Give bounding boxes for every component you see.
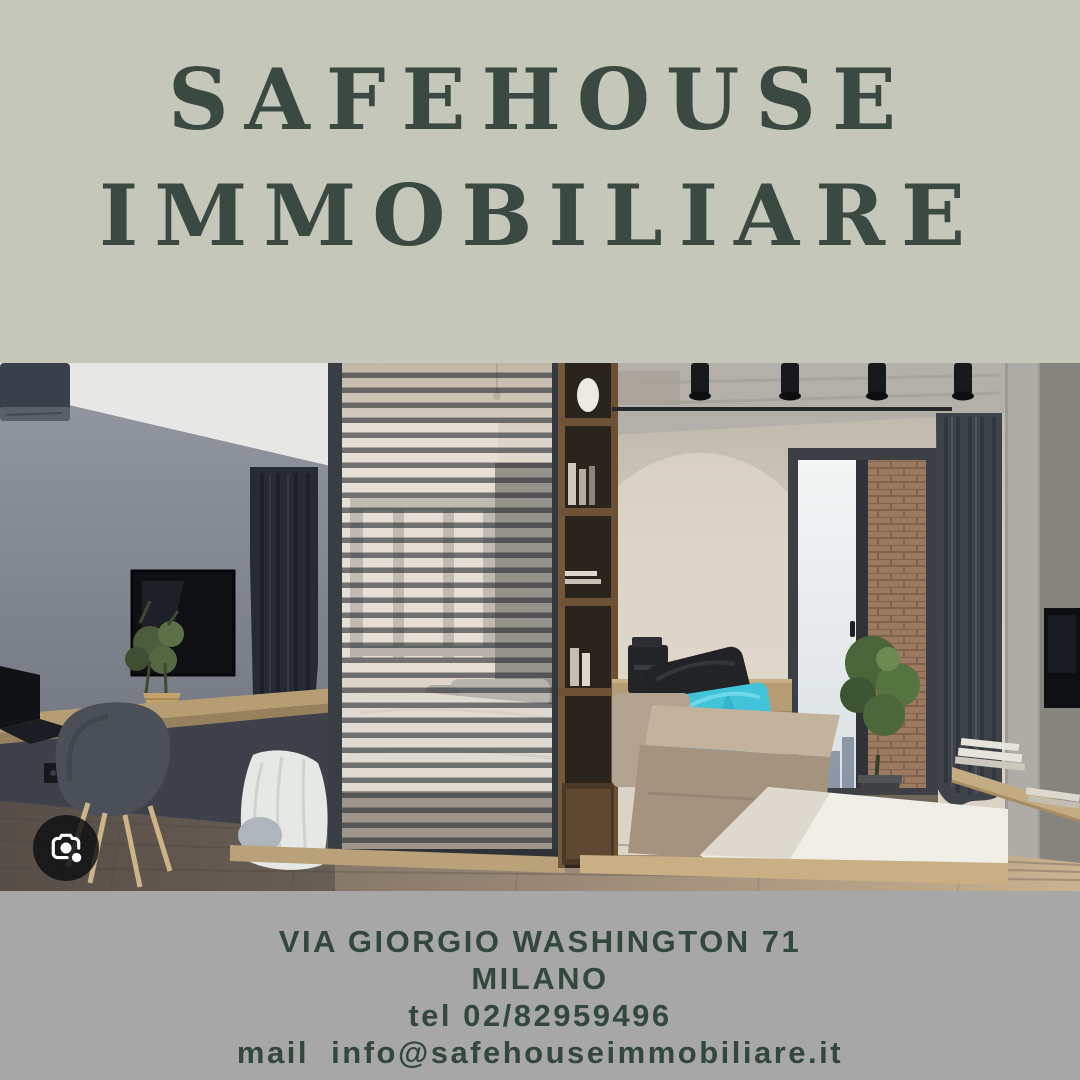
google-lens-icon (48, 830, 84, 866)
header-section: SAFEHOUSE IMMOBILIARE (0, 0, 1080, 363)
flyer: SAFEHOUSE IMMOBILIARE (0, 0, 1080, 1080)
footer-section: VIA GIORGIO WASHINGTON 71 MILANO tel 02/… (0, 891, 1080, 1080)
email-line: mail info@safehouseimmobiliare.it (0, 1034, 1080, 1071)
ceiling-rail (612, 407, 952, 411)
apartment-interior-illustration (0, 363, 1080, 891)
slat-divider (328, 363, 565, 863)
address-line: VIA GIORGIO WASHINGTON 71 (0, 891, 1080, 960)
google-lens-button[interactable] (33, 815, 99, 881)
brand-title-line2: IMMOBILIARE (0, 174, 1080, 258)
tv-right (1044, 608, 1080, 708)
city-line: MILANO (0, 960, 1080, 997)
property-photo (0, 363, 1080, 891)
brand-title-line1: SAFEHOUSE (0, 0, 1080, 142)
phone-line: tel 02/82959496 (0, 997, 1080, 1034)
air-conditioner (0, 363, 70, 421)
bookshelf (558, 363, 618, 868)
